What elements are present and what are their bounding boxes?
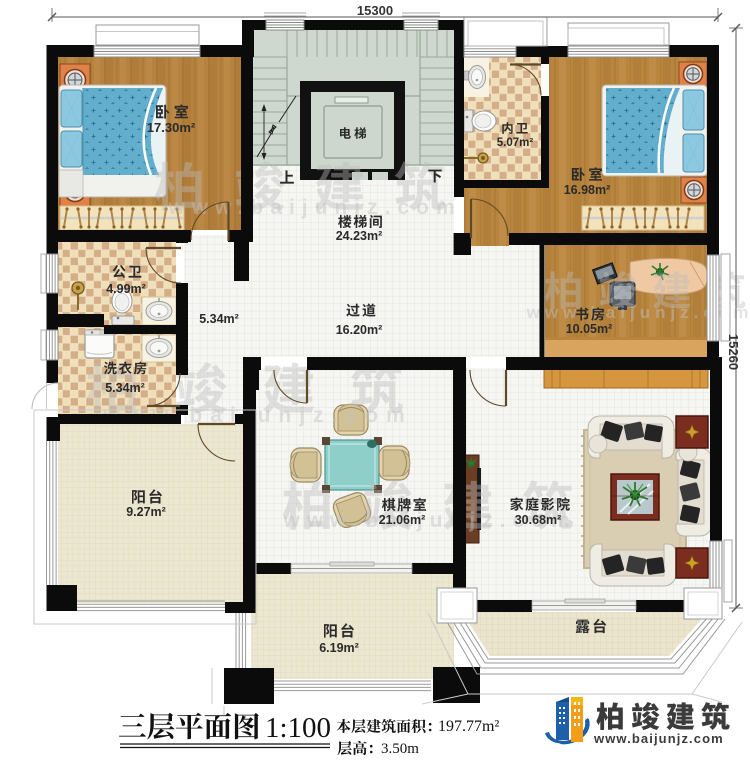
svg-text:1:100: 1:100 — [265, 712, 331, 744]
svg-text:10.05m²: 10.05m² — [566, 322, 613, 336]
svg-text:www.baijunjz.com: www.baijunjz.com — [593, 731, 724, 746]
svg-text:21.06m²: 21.06m² — [379, 513, 426, 527]
svg-text:6.19m²: 6.19m² — [319, 641, 359, 655]
svg-text:www.baijunjz.com: www.baijunjz.com — [167, 196, 461, 219]
svg-text:16.98m²: 16.98m² — [564, 183, 611, 197]
svg-text:30.68m²: 30.68m² — [515, 513, 562, 527]
svg-text:5.34m²: 5.34m² — [105, 381, 145, 395]
svg-text:24.23m²: 24.23m² — [336, 229, 383, 243]
svg-text:17.30m²: 17.30m² — [147, 120, 196, 135]
svg-text:3.50m: 3.50m — [381, 741, 419, 757]
svg-text:9.27m²: 9.27m² — [126, 505, 166, 519]
svg-text:16.20m²: 16.20m² — [336, 323, 383, 337]
svg-text:15260: 15260 — [726, 334, 741, 370]
svg-text:4.99m²: 4.99m² — [106, 282, 146, 296]
svg-text:197.77m²: 197.77m² — [438, 718, 499, 735]
svg-text:15300: 15300 — [357, 3, 393, 18]
svg-text:5.34m²: 5.34m² — [199, 312, 239, 326]
svg-text:5.07m²: 5.07m² — [497, 137, 534, 149]
